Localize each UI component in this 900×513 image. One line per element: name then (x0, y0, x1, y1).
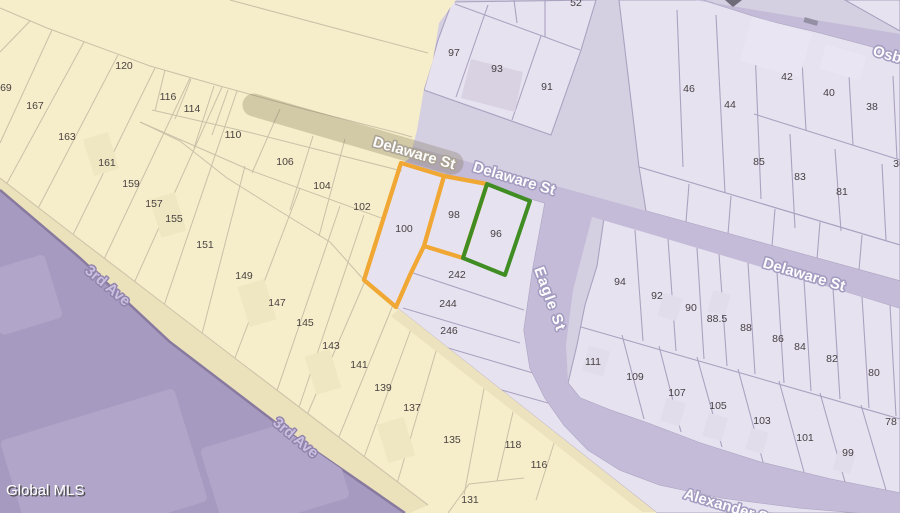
svg-text:110: 110 (225, 129, 242, 141)
svg-text:93: 93 (491, 63, 503, 75)
svg-text:92: 92 (651, 290, 663, 302)
svg-text:40: 40 (823, 87, 835, 99)
svg-text:36: 36 (893, 158, 900, 170)
svg-text:102: 102 (353, 201, 371, 213)
svg-text:91: 91 (541, 81, 553, 93)
svg-text:90: 90 (685, 302, 697, 314)
svg-text:141: 141 (350, 359, 368, 371)
svg-text:106: 106 (276, 156, 294, 168)
svg-text:80: 80 (868, 367, 880, 379)
svg-text:116: 116 (531, 459, 548, 471)
svg-text:118: 118 (505, 439, 522, 451)
svg-text:97: 97 (448, 47, 460, 59)
svg-text:131: 131 (461, 494, 479, 506)
svg-text:100: 100 (395, 223, 413, 235)
svg-text:109: 109 (626, 371, 644, 383)
svg-text:83: 83 (794, 171, 806, 183)
svg-text:147: 147 (268, 297, 286, 309)
svg-text:104: 104 (313, 180, 331, 192)
svg-text:44: 44 (724, 99, 736, 111)
svg-text:84: 84 (794, 341, 806, 353)
svg-text:145: 145 (296, 317, 314, 329)
svg-text:46: 46 (683, 83, 695, 95)
svg-text:242: 242 (448, 269, 466, 281)
svg-text:86: 86 (772, 333, 784, 345)
svg-text:161: 161 (98, 157, 116, 169)
svg-text:246: 246 (440, 325, 458, 337)
svg-text:114: 114 (184, 103, 201, 115)
svg-text:85: 85 (753, 156, 765, 168)
svg-text:244: 244 (439, 298, 457, 310)
svg-text:101: 101 (796, 432, 814, 444)
svg-text:167: 167 (26, 100, 44, 112)
svg-text:159: 159 (122, 178, 140, 190)
svg-text:99: 99 (842, 447, 854, 459)
svg-text:Global MLS: Global MLS (6, 482, 84, 499)
svg-text:107: 107 (668, 387, 686, 399)
svg-text:157: 157 (145, 198, 163, 210)
svg-text:103: 103 (753, 415, 771, 427)
svg-text:111: 111 (585, 356, 601, 368)
svg-text:116: 116 (160, 91, 177, 103)
svg-text:135: 135 (443, 434, 461, 446)
svg-text:82: 82 (826, 353, 838, 365)
svg-text:149: 149 (235, 270, 253, 282)
svg-text:81: 81 (836, 186, 848, 198)
svg-text:42: 42 (781, 71, 793, 83)
svg-text:78: 78 (885, 416, 897, 428)
svg-text:155: 155 (165, 213, 183, 225)
svg-text:163: 163 (58, 131, 76, 143)
svg-text:137: 137 (403, 402, 421, 414)
svg-text:88.5: 88.5 (707, 313, 728, 325)
svg-text:169: 169 (0, 82, 12, 94)
svg-text:52: 52 (570, 0, 582, 9)
svg-text:98: 98 (448, 209, 460, 221)
svg-text:120: 120 (115, 60, 133, 72)
svg-text:105: 105 (709, 400, 727, 412)
svg-text:139: 139 (374, 382, 392, 394)
svg-text:38: 38 (866, 101, 878, 113)
svg-text:96: 96 (490, 228, 502, 240)
svg-text:143: 143 (322, 340, 340, 352)
svg-text:88: 88 (740, 322, 752, 334)
svg-text:94: 94 (614, 276, 626, 288)
svg-text:151: 151 (196, 239, 214, 251)
